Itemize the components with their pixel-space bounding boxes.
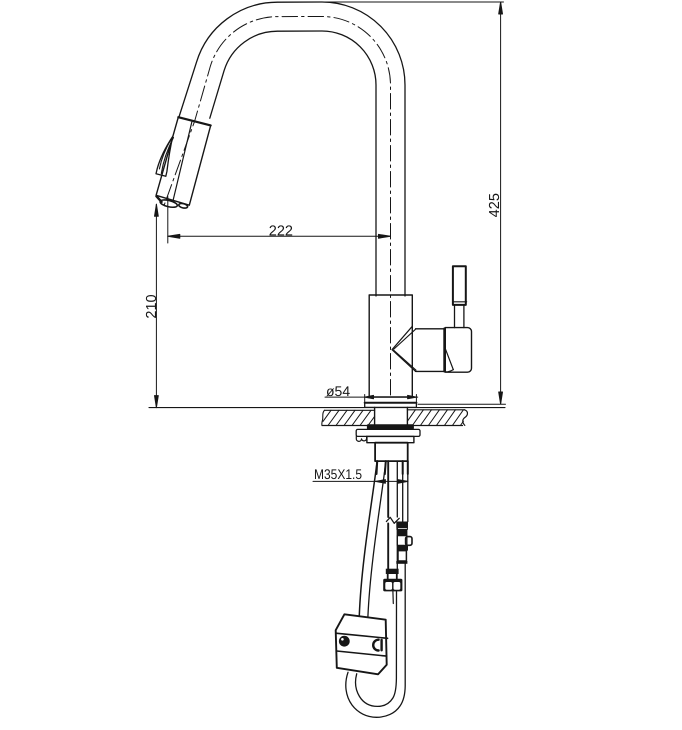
svg-text:210: 210 [144,294,160,318]
svg-text:425: 425 [487,193,503,217]
svg-text:M35X1.5: M35X1.5 [314,466,362,482]
svg-text:ø54: ø54 [326,383,350,399]
svg-text:222: 222 [269,223,293,239]
